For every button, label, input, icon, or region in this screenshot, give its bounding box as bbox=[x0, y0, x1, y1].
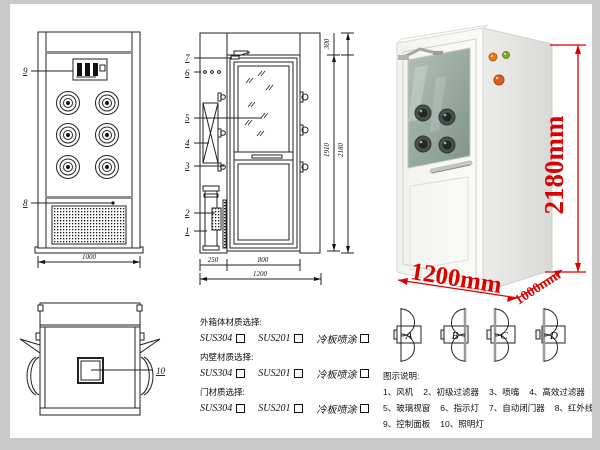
material-checkbox[interactable] bbox=[294, 404, 303, 413]
legend-line: 9、控制面板 10、照明灯 bbox=[383, 418, 588, 430]
legend-item: 6、指示灯 bbox=[440, 402, 479, 414]
top-view-drawing: 10 bbox=[20, 295, 180, 430]
legend-item: 1、风机 bbox=[383, 386, 413, 398]
legend-item: 4、高效过滤器 bbox=[529, 386, 585, 398]
legend-item: 3、喷嘴 bbox=[489, 386, 519, 398]
callout-2: 2 bbox=[185, 208, 190, 218]
top-band bbox=[46, 51, 132, 54]
material-option-label: SUS304 bbox=[200, 403, 232, 414]
spec-sheet: 9 8 1000 bbox=[0, 0, 600, 450]
photo-dim-height: 2180mm bbox=[539, 115, 569, 214]
legend-item: 7、自动闭门器 bbox=[489, 402, 545, 414]
material-checkbox[interactable] bbox=[294, 369, 303, 378]
material-options-row: SUS304 SUS201 冷板喷涂 bbox=[200, 366, 370, 381]
product-photo: 2180mm 1200mm 1000mm bbox=[340, 8, 600, 320]
material-option-label: SUS201 bbox=[258, 403, 290, 414]
door-option-a: A bbox=[394, 306, 424, 364]
material-checkbox[interactable] bbox=[360, 369, 369, 378]
orange-light bbox=[489, 53, 497, 61]
side-view-drawing: 7 6 5 4 3 2 1 300 1910 2180 250 800 1200 bbox=[182, 28, 356, 290]
legend-item: 8、红外线感应器 bbox=[555, 402, 600, 414]
legend-item: 2、初级过滤器 bbox=[423, 386, 479, 398]
door-swing-left bbox=[20, 339, 40, 395]
green-light bbox=[503, 52, 510, 59]
door-option-d: D bbox=[536, 306, 566, 364]
material-option-label: SUS304 bbox=[200, 333, 232, 344]
material-option-label: SUS201 bbox=[258, 368, 290, 379]
legend: 图示说明: 1、风机 2、初级过滤器 3、喷嘴 4、高效过滤器 5、玻璃视窗 6… bbox=[383, 370, 588, 434]
material-checkbox[interactable] bbox=[236, 404, 245, 413]
dim-800: 800 bbox=[258, 256, 269, 264]
legend-title: 图示说明: bbox=[383, 370, 588, 382]
door-option-d-label: D bbox=[549, 330, 558, 342]
door-option-c: C bbox=[487, 306, 517, 364]
material-selection: 外箱体材质选择: SUS304 SUS201 冷板喷涂 内壁材质选择: SUS3… bbox=[200, 316, 370, 421]
hepa-filter bbox=[203, 103, 218, 163]
callout-10: 10 bbox=[156, 366, 166, 376]
right-chamber bbox=[300, 33, 320, 253]
callout-1: 1 bbox=[185, 226, 190, 236]
material-option-label: 冷板喷涂 bbox=[316, 331, 356, 346]
material-checkbox[interactable] bbox=[236, 369, 245, 378]
material-checkbox[interactable] bbox=[294, 334, 303, 343]
material-checkbox[interactable] bbox=[360, 404, 369, 413]
round-button bbox=[494, 75, 504, 85]
front-view-drawing: 9 8 1000 bbox=[18, 28, 150, 276]
dim-1910: 1910 bbox=[323, 143, 331, 158]
callout-5: 5 bbox=[185, 113, 190, 123]
callout-4: 4 bbox=[185, 138, 190, 148]
material-section-title: 内壁材质选择: bbox=[200, 351, 370, 363]
dim-250: 250 bbox=[208, 256, 219, 264]
door-option-c-label: C bbox=[500, 330, 508, 342]
material-option-label: 冷板喷涂 bbox=[316, 366, 356, 381]
legend-item: 10、照明灯 bbox=[440, 418, 483, 430]
legend-item: 9、控制面板 bbox=[383, 418, 430, 430]
prefilter-grid bbox=[212, 208, 221, 230]
door-option-b-label: B bbox=[452, 330, 459, 342]
control-panel bbox=[73, 59, 107, 80]
callout-3: 3 bbox=[184, 161, 190, 171]
material-options-row: SUS304 SUS201 冷板喷涂 bbox=[200, 331, 370, 346]
legend-item: 5、玻璃视窗 bbox=[383, 402, 430, 414]
material-section-title: 门材质选择: bbox=[200, 386, 370, 398]
material-option-label: SUS304 bbox=[200, 368, 232, 379]
dim-1200: 1200 bbox=[253, 270, 268, 278]
callout-7: 7 bbox=[185, 53, 190, 63]
dim-1000: 1000 bbox=[82, 253, 97, 261]
callout-9: 9 bbox=[23, 66, 28, 76]
material-checkbox[interactable] bbox=[360, 334, 369, 343]
door-option-b: B bbox=[441, 306, 471, 364]
callout-6: 6 bbox=[185, 68, 190, 78]
dim-300: 300 bbox=[323, 38, 331, 50]
material-option-label: 冷板喷涂 bbox=[316, 401, 356, 416]
legend-line: 1、风机 2、初级过滤器 3、喷嘴 4、高效过滤器 bbox=[383, 386, 588, 398]
door-option-a-label: A bbox=[405, 330, 413, 342]
material-checkbox[interactable] bbox=[236, 334, 245, 343]
callout-8: 8 bbox=[23, 198, 28, 208]
material-section-title: 外箱体材质选择: bbox=[200, 316, 370, 328]
mid-band bbox=[46, 196, 132, 199]
legend-line: 5、玻璃视窗 6、指示灯 7、自动闭门器 8、红外线感应器 bbox=[383, 402, 588, 414]
door bbox=[227, 55, 300, 251]
material-option-label: SUS201 bbox=[258, 333, 290, 344]
material-options-row: SUS304 SUS201 冷板喷涂 bbox=[200, 401, 370, 416]
air-return-grille bbox=[52, 206, 126, 244]
